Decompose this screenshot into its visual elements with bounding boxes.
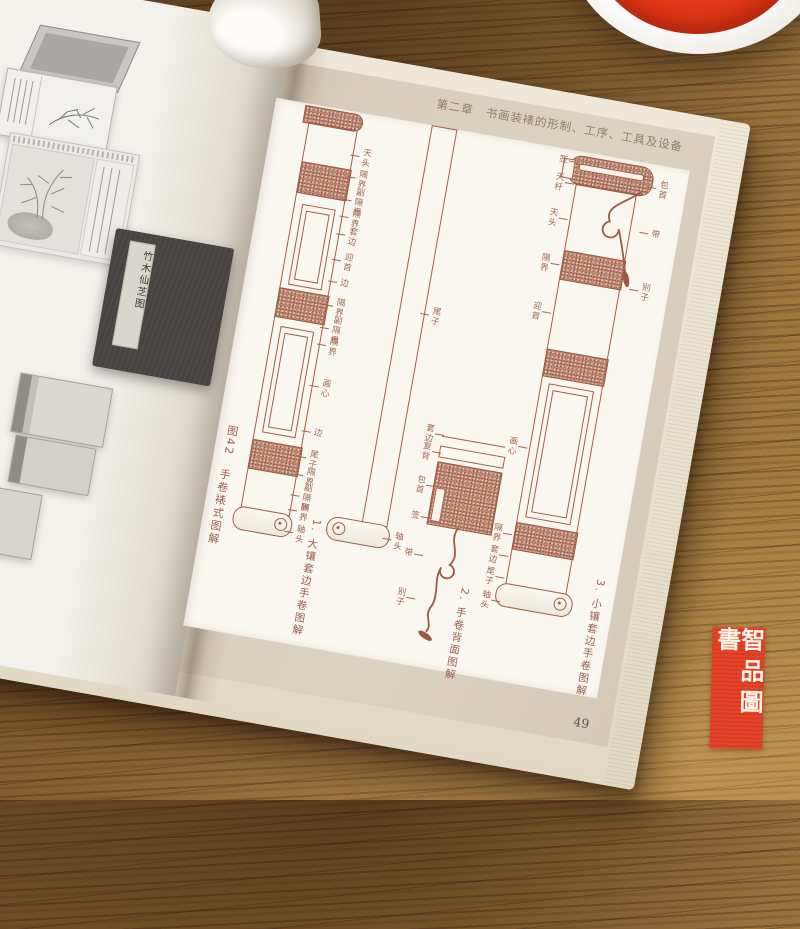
diagram-label: 迎首: [529, 300, 541, 321]
diagram-label: 包首: [656, 180, 668, 201]
diagram-label: 隔界: [490, 522, 502, 543]
calligraphy-column: [97, 168, 113, 253]
desk-scene: { "book": { "left_page": { "photos": [ {…: [0, 0, 800, 800]
d2-edge-rod: [442, 436, 505, 448]
diagram-label: 签: [557, 154, 567, 165]
diagram-label: 隔界: [326, 337, 338, 358]
diagram-label: 天杆: [552, 171, 564, 192]
diagram-label: 尾子: [483, 565, 495, 586]
publisher-seal-stamp: 智品圖書: [709, 626, 765, 749]
diagram-label: 包首: [414, 474, 426, 495]
diagram-label: 带: [402, 547, 412, 558]
diagram-label: 隔界: [538, 252, 550, 273]
diagram2-caption: 2. 手卷背面图解: [442, 587, 473, 683]
diagram-label: 轴头: [391, 531, 403, 552]
diagram-label: 尾子: [429, 306, 441, 327]
diagram-label: 签: [409, 509, 419, 520]
diagram-label: 天头: [359, 148, 371, 169]
diagram-label: 隔界: [297, 502, 309, 523]
diagram-label: 画心: [506, 435, 518, 456]
diagram-label: 天头: [546, 207, 558, 228]
photo-closed-album: 竹木仙芝图: [92, 228, 234, 387]
red-seal-paste: [590, 0, 800, 34]
d3-roller-knob: [553, 597, 568, 612]
diagram-label: 边: [312, 427, 322, 438]
d2-roller-knob: [331, 521, 346, 536]
title-slip: 竹木仙芝图: [112, 241, 156, 350]
diagram-label: 轴头: [293, 524, 305, 545]
diagram-label: 别子: [638, 282, 650, 303]
title-slip-text: 竹木仙芝图: [120, 248, 154, 311]
bamboo-sketch: [35, 79, 114, 146]
diagram-label: 复背: [419, 440, 431, 461]
diagram-label: 迎首: [341, 252, 353, 273]
diagram-label: 别子: [394, 586, 406, 607]
diagram-label: 边: [338, 277, 348, 288]
diagram-label: 套边: [346, 226, 358, 247]
open-book: 竹木仙芝图 第二章 书画装裱的形制、工序、工具及设备 49 天头 隔界 副隔界: [0, 0, 800, 929]
diagram-label: 套边: [487, 544, 499, 565]
page-number: 49: [572, 714, 590, 732]
diagram-label: 带: [649, 229, 659, 240]
bamboo-rock-painting: [0, 144, 95, 255]
d1-roller-knob: [273, 517, 288, 532]
diagram-label: 轴头: [479, 589, 491, 610]
diagram-label: 画心: [319, 378, 331, 399]
bamboo-sketch: [3, 147, 94, 230]
publisher-seal-text: 智品圖書: [712, 626, 763, 749]
